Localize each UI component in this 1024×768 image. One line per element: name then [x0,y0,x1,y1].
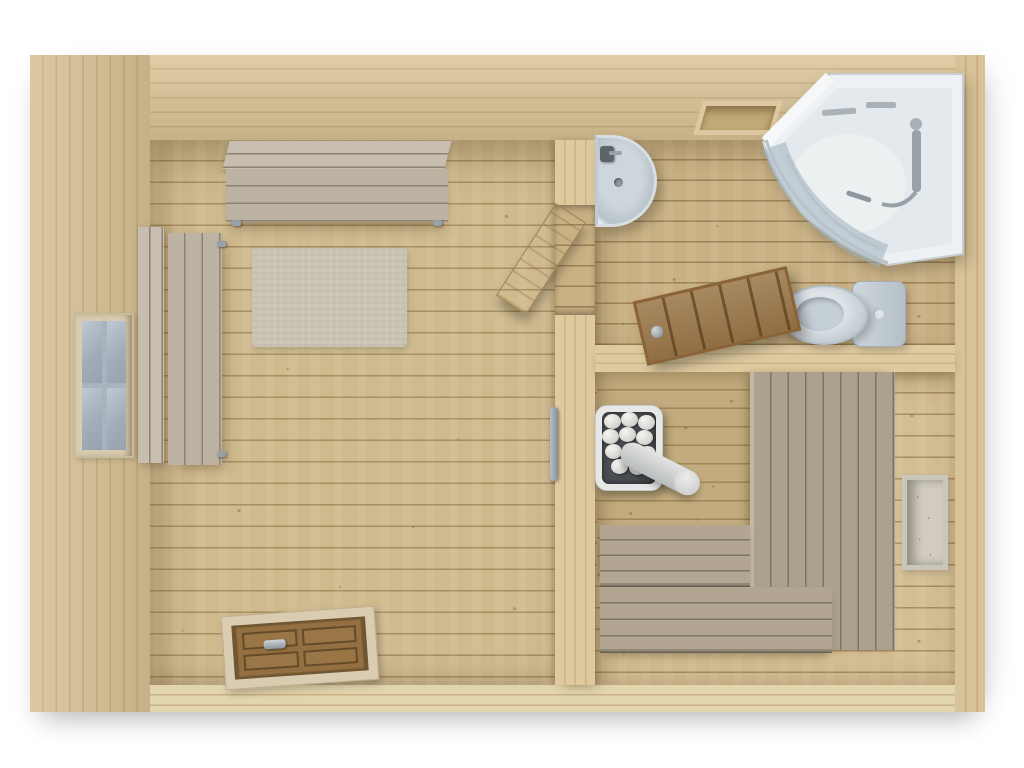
entrance-door [221,606,380,691]
wall-south [30,685,985,712]
bench-leg [232,220,241,226]
heater-stone [621,412,638,427]
bench-leg [433,220,442,226]
wall-bench-seat [226,169,448,222]
shower-cabin-graphic [760,72,965,270]
heater-stone [602,429,619,444]
sauna-middle-bench [600,525,750,587]
bench-leg [217,451,226,457]
window-pane [82,321,102,383]
window-glazing [82,321,126,450]
window [74,313,134,458]
east-wall-niche [902,475,948,570]
window-pane [107,321,127,383]
wall-bench-backrest [223,141,452,169]
door-panel [301,625,357,645]
bench-leg [217,241,226,247]
door-panel [243,651,299,671]
heater-stone [604,414,621,429]
cabin-building [30,55,985,712]
entrance-door-leaf [235,619,364,678]
shower-cabin [760,72,965,270]
toilet-flush-button [873,308,884,319]
heater-stone [638,415,655,430]
window-pane [82,388,102,450]
door-handle [263,639,286,650]
door-panel [303,647,359,667]
floor-rug [252,248,407,347]
side-bench-seat [168,233,222,465]
sink-faucet [600,146,614,162]
sauna-lower-bench [600,587,832,653]
door-knob [650,325,664,339]
render-canvas [0,0,1024,768]
side-bench-backrest [138,227,164,463]
sink-drain [614,178,623,187]
window-pane [107,388,127,450]
heater-stone [619,427,636,442]
heater-stone [636,430,653,445]
sauna-door-handle [550,407,558,481]
